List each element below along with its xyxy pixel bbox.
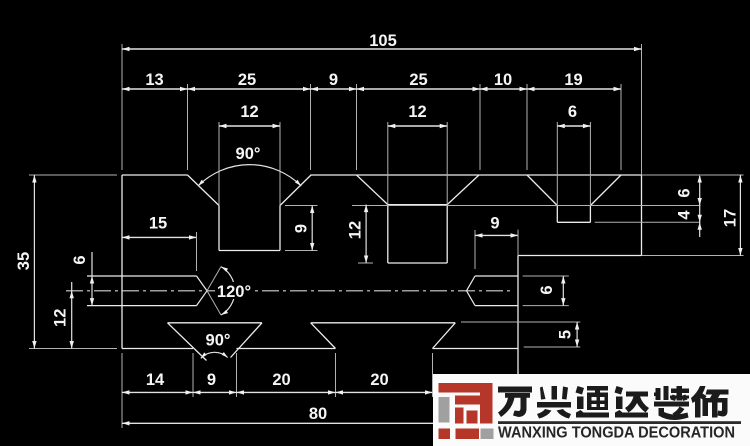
svg-text:6: 6 — [538, 285, 556, 294]
svg-text:12: 12 — [51, 309, 69, 327]
svg-text:15: 15 — [149, 214, 167, 232]
svg-text:80: 80 — [309, 405, 327, 423]
svg-text:WANXING TONGDA DECORATION: WANXING TONGDA DECORATION — [498, 425, 735, 442]
svg-text:6: 6 — [71, 255, 89, 264]
svg-text:9: 9 — [207, 371, 216, 389]
svg-text:35: 35 — [15, 252, 33, 270]
svg-text:4: 4 — [675, 210, 693, 220]
svg-text:120°: 120° — [217, 283, 251, 301]
svg-text:90°: 90° — [236, 145, 261, 163]
svg-text:10: 10 — [494, 71, 512, 89]
svg-text:13: 13 — [145, 71, 163, 89]
svg-text:17: 17 — [721, 209, 739, 227]
svg-text:12: 12 — [346, 221, 364, 239]
svg-text:6: 6 — [568, 103, 577, 121]
svg-text:5: 5 — [556, 330, 574, 339]
svg-text:90°: 90° — [206, 331, 231, 349]
svg-text:20: 20 — [272, 371, 290, 389]
svg-text:9: 9 — [329, 71, 338, 89]
svg-text:25: 25 — [409, 71, 427, 89]
svg-text:105: 105 — [369, 32, 397, 50]
svg-text:9: 9 — [490, 214, 499, 232]
svg-text:9: 9 — [292, 224, 310, 233]
svg-text:12: 12 — [240, 103, 258, 121]
svg-text:19: 19 — [564, 71, 582, 89]
svg-text:14: 14 — [146, 371, 165, 389]
svg-text:20: 20 — [370, 371, 388, 389]
svg-text:12: 12 — [408, 103, 426, 121]
svg-text:25: 25 — [238, 71, 256, 89]
svg-text:6: 6 — [675, 188, 693, 197]
